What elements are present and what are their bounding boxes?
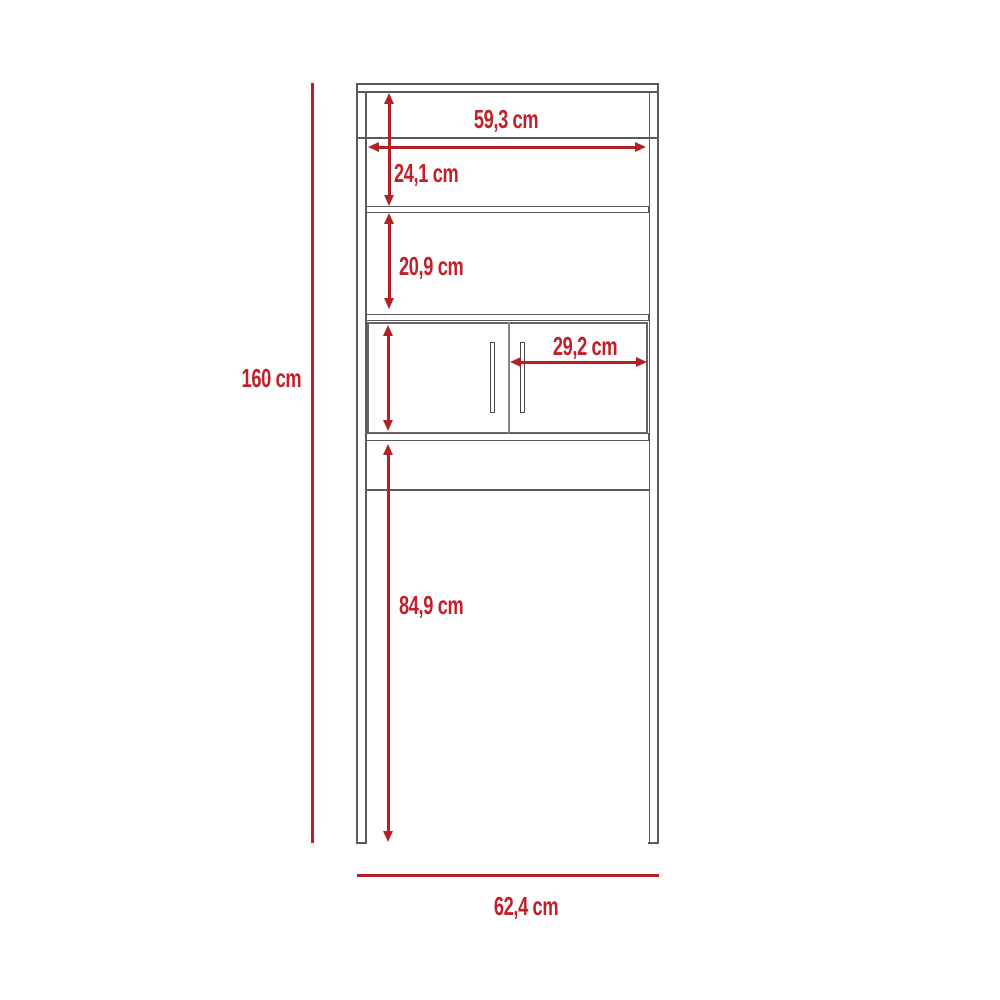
label-top-section-height: 24,1 cm: [394, 160, 458, 186]
total-width-extent-line: [357, 874, 659, 877]
cabinet-top-board-bottom-edge: [357, 91, 658, 93]
label-door-width: 29,2 cm: [553, 333, 617, 359]
label-base-clearance-height: 84,9 cm: [399, 592, 463, 618]
cabinet-left-inner-edge: [365, 91, 367, 843]
shelf-board-middle: [366, 206, 649, 213]
total-height-extent-line: [311, 83, 314, 843]
cabinet-top-board-top-edge: [357, 83, 658, 85]
door-handle-right: [520, 342, 526, 413]
dimension-diagram: 160 cm 59,3 cm 24,1 cm 20,9 cm 29,2 cm 8…: [0, 0, 1000, 1000]
cabinet-left-outer-edge: [356, 83, 358, 843]
leg-right-bottom-cap: [648, 842, 659, 844]
label-shelf-inner-width: 59,3 cm: [474, 106, 538, 132]
shelf-board-lower: [366, 314, 649, 321]
cabinet-right-outer-edge: [657, 83, 659, 843]
door-center-divider: [508, 322, 511, 434]
cabinet-right-inner-edge: [649, 91, 651, 843]
label-total-width: 62,4 cm: [494, 893, 558, 919]
cabinet-bottom-board: [366, 433, 649, 441]
shelf-line-upper: [357, 137, 658, 139]
apron-bottom-line: [366, 489, 649, 491]
label-middle-section-height: 20,9 cm: [399, 253, 463, 279]
label-total-height: 160 cm: [241, 365, 301, 391]
leg-left-bottom-cap: [356, 842, 367, 844]
door-handle-left: [490, 342, 496, 413]
